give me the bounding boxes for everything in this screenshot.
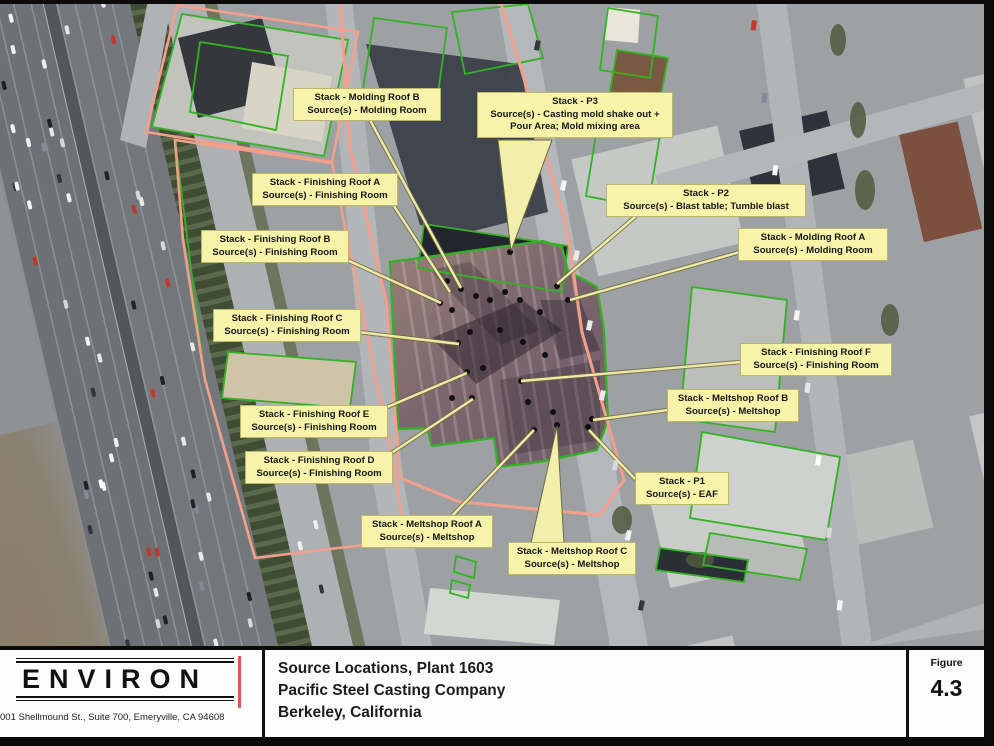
- figure-title-line: Berkeley, California: [278, 702, 878, 724]
- environ-logo: ENVIRON: [16, 658, 234, 701]
- figure-title-line: Source Locations, Plant 1603: [278, 658, 878, 680]
- callout-stack-line: Stack - P1: [641, 476, 723, 489]
- callout-stack-line: Stack - Meltshop Roof B: [673, 393, 793, 406]
- callout-source-line: Source(s) - Finishing Room: [258, 190, 392, 203]
- callout-source-line: Source(s) - Blast table; Tumble blast: [612, 201, 800, 214]
- callout-stack-line: Stack - Finishing Roof B: [207, 234, 343, 247]
- callout-stack-line: Stack - Finishing Roof D: [251, 455, 387, 468]
- title-block: ENVIRON 001 Shellmound St., Suite 700, E…: [0, 650, 994, 737]
- frame-border-bottom: [0, 737, 994, 746]
- callout-stack-line: Stack - Finishing Roof C: [219, 313, 355, 326]
- callout-source-line: Source(s) - Finishing Room: [219, 326, 355, 339]
- title-block-divider: [262, 650, 265, 737]
- callout-source-line: Source(s) - Meltshop: [367, 532, 487, 545]
- figure-title: Source Locations, Plant 1603 Pacific Ste…: [278, 658, 878, 724]
- callout-stack-line: Stack - Molding Roof B: [299, 92, 435, 105]
- callout-stack-line: Stack - Finishing Roof F: [746, 347, 886, 360]
- logo-rule: [16, 700, 234, 701]
- callout-stack-line: Stack - Meltshop Roof C: [514, 546, 630, 559]
- callout-molding-roof-b: Stack - Molding Roof BSource(s) - Moldin…: [293, 88, 441, 121]
- figure-number-block: Figure 4.3: [909, 650, 984, 737]
- frame-border-top: [0, 0, 994, 4]
- callout-finishing-roof-b: Stack - Finishing Roof BSource(s) - Fini…: [201, 230, 349, 263]
- callout-stack-line: Stack - Finishing Roof E: [246, 409, 382, 422]
- figure-number: 4.3: [909, 676, 984, 701]
- callout-stack-p3: Stack - P3Source(s) - Casting mold shake…: [477, 92, 673, 138]
- callout-source-line: Source(s) - Molding Room: [744, 245, 882, 258]
- callout-finishing-roof-e: Stack - Finishing Roof ESource(s) - Fini…: [240, 405, 388, 438]
- callout-meltshop-roof-a: Stack - Meltshop Roof ASource(s) - Melts…: [361, 515, 493, 548]
- environ-logo-block: ENVIRON 001 Shellmound St., Suite 700, E…: [0, 650, 262, 737]
- logo-wordmark: ENVIRON: [16, 663, 234, 696]
- callout-source-line: Source(s) - Finishing Room: [251, 468, 387, 481]
- callout-molding-roof-a: Stack - Molding Roof ASource(s) - Moldin…: [738, 228, 888, 261]
- logo-text: ENVIRON: [22, 664, 208, 694]
- callout-meltshop-roof-c: Stack - Meltshop Roof CSource(s) - Melts…: [508, 542, 636, 575]
- callout-stack-line: Stack - Molding Roof A: [744, 232, 882, 245]
- callout-stack-p1: Stack - P1Source(s) - EAF: [635, 472, 729, 505]
- callout-source-line: Source(s) - Finishing Room: [207, 247, 343, 260]
- logo-red-bar: [238, 656, 241, 708]
- callout-source-line: Source(s) - Meltshop: [514, 559, 630, 572]
- frame-border-right: [984, 0, 994, 746]
- callout-source-line: Source(s) - Finishing Room: [246, 422, 382, 435]
- callout-finishing-roof-a: Stack - Finishing Roof ASource(s) - Fini…: [252, 173, 398, 206]
- figure-label: Figure: [909, 657, 984, 670]
- callout-finishing-roof-d: Stack - Finishing Roof DSource(s) - Fini…: [245, 451, 393, 484]
- callout-source-line: Source(s) - Molding Room: [299, 105, 435, 118]
- company-address: 001 Shellmound St., Suite 700, Emeryvill…: [0, 712, 256, 723]
- callout-finishing-roof-f: Stack - Finishing Roof FSource(s) - Fini…: [740, 343, 892, 376]
- callout-stack-p2: Stack - P2Source(s) - Blast table; Tumbl…: [606, 184, 806, 217]
- callout-stack-line: Stack - Meltshop Roof A: [367, 519, 487, 532]
- callout-source-line: Source(s) - Meltshop: [673, 406, 793, 419]
- callout-stack-line: Stack - P2: [612, 188, 800, 201]
- callout-source-line: Source(s) - Casting mold shake out + Pou…: [483, 109, 667, 134]
- callout-meltshop-roof-b: Stack - Meltshop Roof BSource(s) - Melts…: [667, 389, 799, 422]
- aerial-map: Stack - Molding Roof BSource(s) - Moldin…: [0, 0, 994, 646]
- figure-page: Stack - Molding Roof BSource(s) - Moldin…: [0, 0, 994, 746]
- callout-stack-line: Stack - Finishing Roof A: [258, 177, 392, 190]
- figure-title-line: Pacific Steel Casting Company: [278, 680, 878, 702]
- callout-stack-line: Stack - P3: [483, 96, 667, 109]
- callout-source-line: Source(s) - Finishing Room: [746, 360, 886, 373]
- callout-source-line: Source(s) - EAF: [641, 489, 723, 502]
- callout-finishing-roof-c: Stack - Finishing Roof CSource(s) - Fini…: [213, 309, 361, 342]
